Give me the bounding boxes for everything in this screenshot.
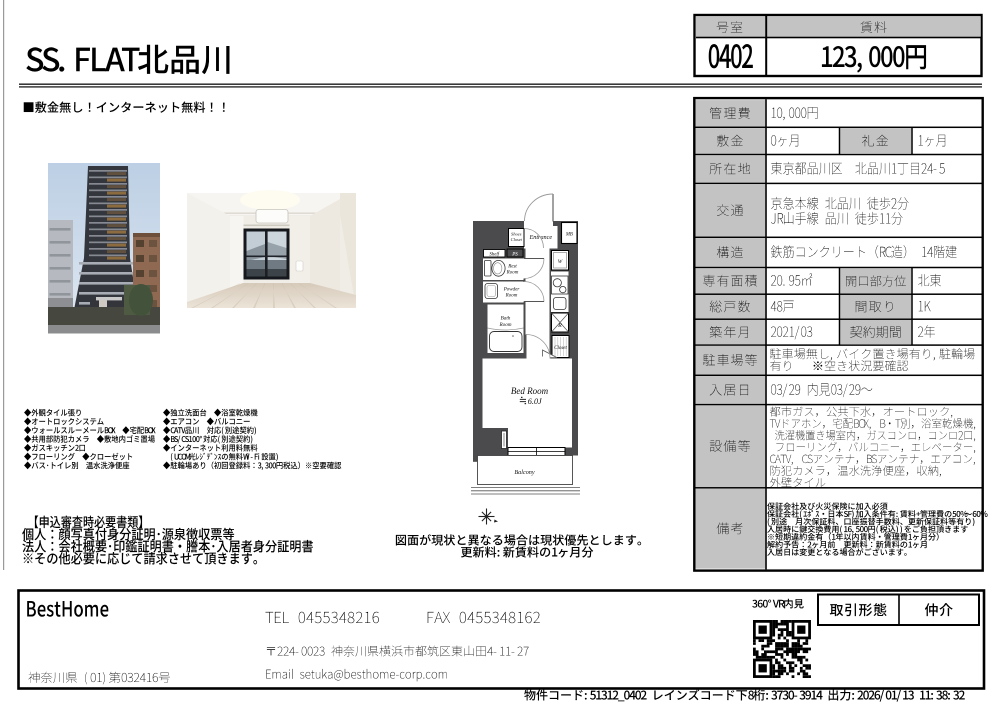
svg-text:Balcony: Balcony — [514, 469, 535, 476]
svg-text:R: R — [557, 323, 562, 329]
svg-text:Bath: Bath — [501, 316, 511, 322]
svg-text:Closet: Closet — [511, 237, 523, 242]
svg-text:Shoes: Shoes — [511, 232, 522, 237]
svg-text:MB: MB — [565, 233, 573, 238]
svg-text:Room: Room — [505, 294, 518, 299]
svg-text:Powder: Powder — [503, 288, 520, 293]
svg-text:W: W — [558, 259, 563, 265]
svg-text:Room: Room — [498, 322, 511, 328]
svg-text:Shelf: Shelf — [489, 253, 499, 258]
svg-text:Closet: Closet — [554, 346, 567, 351]
svg-text:PS: PS — [511, 253, 518, 258]
svg-text:Rest: Rest — [507, 265, 517, 270]
svg-text:Room: Room — [506, 271, 519, 276]
svg-text:6.0J: 6.0J — [528, 397, 542, 406]
svg-text:Bed Room: Bed Room — [511, 386, 549, 396]
